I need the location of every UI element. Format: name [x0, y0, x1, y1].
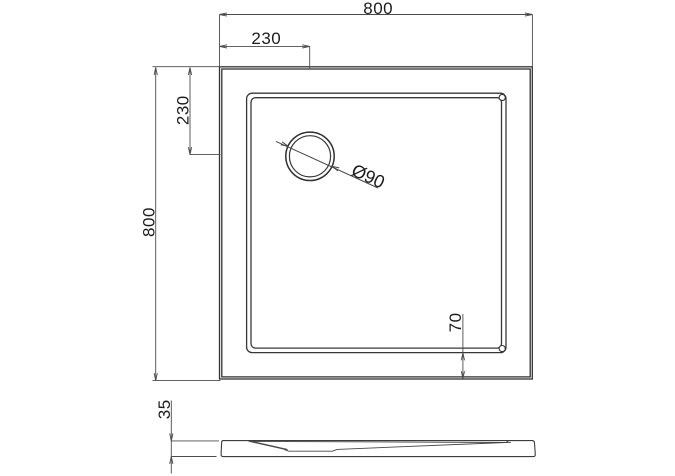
svg-text:800: 800 [140, 207, 159, 237]
svg-text:70: 70 [446, 312, 465, 332]
svg-text:230: 230 [251, 29, 281, 48]
svg-text:230: 230 [174, 95, 193, 125]
svg-text:800: 800 [363, 0, 393, 18]
svg-text:35: 35 [155, 399, 174, 419]
